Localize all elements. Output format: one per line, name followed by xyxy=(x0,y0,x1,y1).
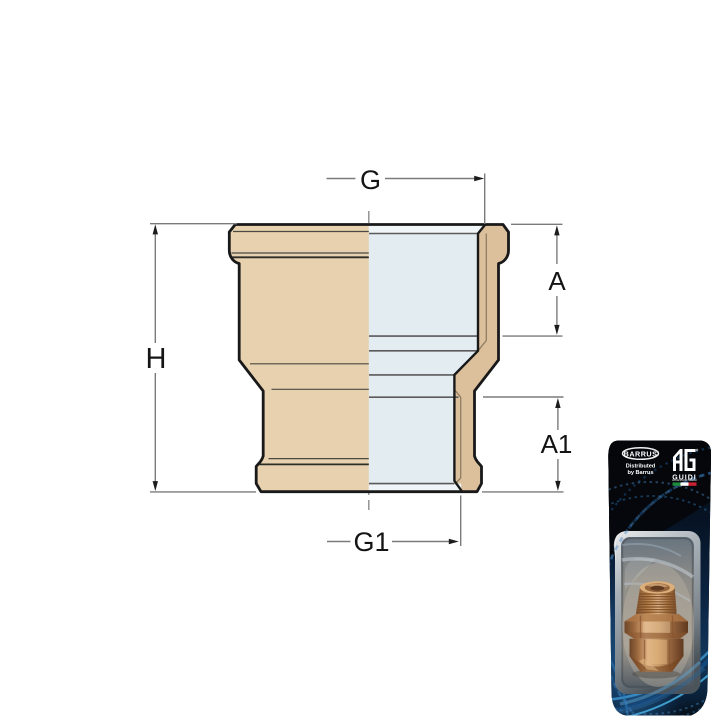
svg-text:Distributed: Distributed xyxy=(626,464,656,470)
svg-text:BARRUS: BARRUS xyxy=(624,449,658,458)
svg-text:A1: A1 xyxy=(541,429,573,459)
svg-text:G1: G1 xyxy=(353,527,389,557)
svg-text:A: A xyxy=(548,266,566,296)
svg-text:by Barrus: by Barrus xyxy=(627,470,653,476)
svg-text:G: G xyxy=(360,165,381,195)
svg-text:H: H xyxy=(146,343,167,375)
svg-text:ACCESSORI NAVALI: ACCESSORI NAVALI xyxy=(672,478,697,482)
